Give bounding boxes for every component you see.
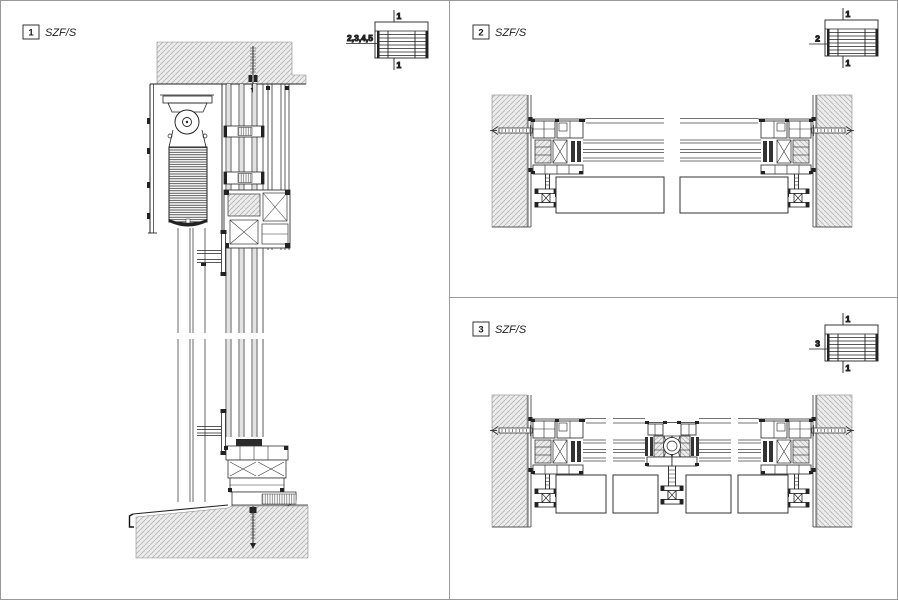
panel-title: SZF/S [45,27,77,39]
blind-guide-lines [178,228,205,502]
jamb-detail-left [490,395,683,527]
drawing-canvas: 1 SZF/S 1 1 2,3,4,5 [0,0,898,600]
section-mark-top: 1 [846,314,851,324]
technical-drawing-sheet: 1 SZF/S 1 1 2,3,4,5 [0,0,898,600]
key-side-label: 2,3,4,5 [347,33,373,43]
floor-slab [130,494,309,558]
panel-1-section-drawing: 1 SZF/S 1 1 2,3,4,5 [23,10,428,558]
roller-blind [169,147,207,227]
panel-3-label: 3 SZF/S [473,322,527,336]
panel-title: SZF/S [495,27,527,39]
frame-column [224,84,290,437]
panel-3-section-drawing: 3 SZF/S 1 1 3 [473,313,878,527]
section-mark-top: 1 [846,9,851,19]
panel-2-label: 2 SZF/S [473,25,527,39]
flashing-profile [130,514,135,527]
panel-3-key-diagram: 1 1 3 [809,313,878,373]
gasket-brush-band [262,494,296,504]
jamb-detail-right [680,95,854,227]
panel-2-key-diagram: 1 1 2 [809,8,878,68]
panel-2-section-drawing: 2 SZF/S 1 1 2 [473,8,878,227]
panel-1-key-diagram: 1 1 2,3,4,5 [346,10,428,70]
panel-1-label: 1 SZF/S [23,25,77,39]
panel-title: SZF/S [495,324,527,336]
wall-bracket-upper [197,230,227,276]
section-mark-bottom: 1 [397,60,402,70]
section-mark-bottom: 1 [846,363,851,373]
key-side-label: 3 [815,339,820,349]
jamb-detail-left [490,95,664,227]
section-mark-bottom: 1 [846,58,851,68]
key-side-label: 2 [815,34,820,44]
section-mark-top: 1 [397,11,402,21]
panel-number: 3 [478,325,483,336]
wall-bracket-lower [197,409,227,455]
jamb-detail-right [661,395,854,527]
panel-number: 2 [478,28,483,39]
panel-number: 1 [28,28,34,39]
profile-cluster-mid [224,190,290,248]
lintel-block [150,42,306,84]
